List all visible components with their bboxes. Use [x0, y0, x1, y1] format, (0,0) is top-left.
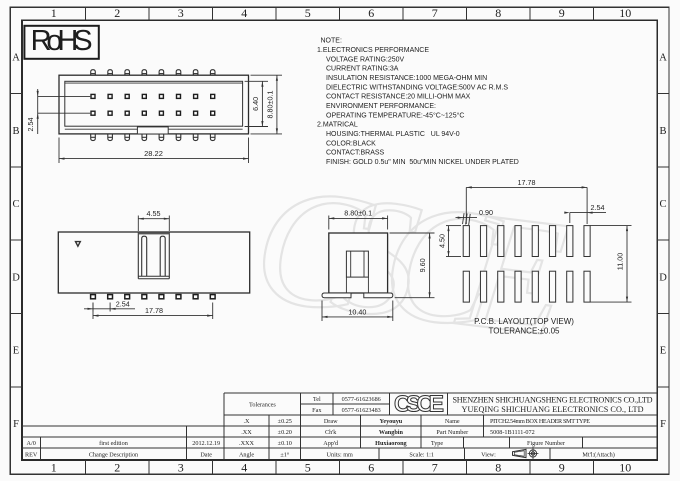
- svg-text:Date: Date: [200, 452, 212, 459]
- svg-text:CONTACT:BRASS: CONTACT:BRASS: [326, 150, 385, 157]
- svg-text:10: 10: [619, 461, 631, 475]
- svg-text:11.00: 11.00: [615, 253, 624, 270]
- svg-text:YUEQING SHICHUANG ELECTRONICS: YUEQING SHICHUANG ELECTRONICS CO., LTD: [462, 405, 644, 414]
- svg-text:ENVIRONMENT PERFORMANCE:: ENVIRONMENT PERFORMANCE:: [326, 103, 436, 110]
- svg-text:PITCH2.54mm BOX HEADER SMT TYP: PITCH2.54mm BOX HEADER SMT TYPE: [490, 418, 590, 425]
- svg-text:E: E: [13, 346, 19, 357]
- svg-text:C: C: [659, 199, 666, 210]
- svg-text:Angle: Angle: [239, 452, 254, 459]
- svg-text:Fax: Fax: [312, 407, 322, 414]
- svg-text:8.80±0.1: 8.80±0.1: [265, 91, 274, 119]
- svg-text:Yeyouyu: Yeyouyu: [380, 418, 403, 425]
- svg-text:2.54: 2.54: [591, 203, 605, 212]
- svg-text:6: 6: [368, 6, 374, 20]
- svg-text:9.60: 9.60: [418, 258, 427, 272]
- svg-text:OPERATING TEMPERATURE:-45°C~12: OPERATING TEMPERATURE:-45°C~125°C: [326, 111, 464, 119]
- svg-text:Change Description: Change Description: [89, 452, 138, 459]
- svg-text:5008-1B1111-072: 5008-1B1111-072: [490, 429, 535, 436]
- svg-text:Part Number: Part Number: [436, 429, 468, 436]
- svg-text:7: 7: [432, 6, 438, 20]
- svg-text:Scale: 1:1: Scale: 1:1: [409, 452, 434, 459]
- svg-text:REV: REV: [25, 452, 38, 459]
- svg-text:NOTE:: NOTE:: [321, 38, 342, 45]
- svg-text:D: D: [659, 272, 667, 283]
- svg-text:8: 8: [495, 461, 501, 475]
- svg-text:Mt'l:(Attach): Mt'l:(Attach): [582, 452, 614, 459]
- svg-text:D: D: [12, 272, 20, 283]
- svg-text:Huxiaorong: Huxiaorong: [375, 440, 407, 447]
- svg-text:CSCE: CSCE: [394, 390, 444, 416]
- svg-text:SHENZHEN SHICHUANGSHENG ELECTR: SHENZHEN SHICHUANGSHENG ELECTRONICS CO.,…: [453, 395, 653, 404]
- svg-text:Tolerances: Tolerances: [249, 401, 276, 408]
- svg-text:10.40: 10.40: [348, 308, 366, 317]
- svg-text:4.55: 4.55: [147, 209, 161, 218]
- svg-text:Figure Number: Figure Number: [527, 440, 565, 447]
- svg-text:COLOR:BLACK: COLOR:BLACK: [326, 140, 376, 147]
- svg-text:8.80±0.1: 8.80±0.1: [344, 209, 372, 218]
- svg-text:6.40: 6.40: [251, 97, 260, 111]
- svg-text:2012.12.19: 2012.12.19: [192, 440, 220, 447]
- svg-text:Name: Name: [445, 418, 460, 425]
- svg-text:.XX: .XX: [241, 429, 252, 436]
- svg-text:first edition: first edition: [99, 440, 128, 447]
- svg-text:3: 3: [178, 461, 184, 475]
- svg-text:View:: View:: [481, 452, 496, 459]
- svg-text:Type: Type: [431, 440, 444, 447]
- svg-text:±1°: ±1°: [280, 452, 289, 459]
- svg-text:Draw: Draw: [324, 418, 338, 425]
- svg-text:HOUSING:THERMAL PLASTIC UL 9: HOUSING:THERMAL PLASTIC UL 94V-0: [326, 131, 460, 138]
- svg-text:A/0: A/0: [27, 440, 36, 447]
- svg-text:F: F: [660, 419, 666, 430]
- svg-text:Units: mm: Units: mm: [327, 452, 353, 459]
- svg-text:5: 5: [305, 6, 311, 20]
- svg-text:±0.25: ±0.25: [278, 418, 292, 425]
- svg-text:A: A: [659, 53, 667, 64]
- svg-text:2.54: 2.54: [26, 118, 35, 132]
- svg-text:CURRENT RATING:3A: CURRENT RATING:3A: [326, 66, 399, 73]
- svg-text:RoHS: RoHS: [31, 25, 93, 57]
- svg-text:6: 6: [368, 461, 374, 475]
- svg-text:5: 5: [305, 461, 311, 475]
- svg-text:10: 10: [619, 6, 631, 20]
- svg-text:VOLTAGE RATING:250V: VOLTAGE RATING:250V: [326, 56, 405, 63]
- svg-text:0.90: 0.90: [479, 208, 493, 217]
- svg-text:FINISH: GOLD 0.5u" MIN 50u"MI: FINISH: GOLD 0.5u" MIN 50u"MIN NICKEL UN…: [326, 159, 519, 166]
- svg-text:B: B: [12, 126, 19, 137]
- svg-text:1: 1: [51, 6, 57, 20]
- svg-text:4: 4: [241, 461, 247, 475]
- svg-text:F: F: [13, 419, 19, 430]
- svg-text:.X: .X: [243, 418, 250, 425]
- svg-text:0577-61623686: 0577-61623686: [342, 396, 381, 403]
- svg-text:E: E: [660, 346, 666, 357]
- svg-text:P.C.B. LAYOUT(TOP VIEW): P.C.B. LAYOUT(TOP VIEW): [474, 317, 574, 326]
- svg-text:2: 2: [114, 6, 120, 20]
- svg-text:3: 3: [178, 6, 184, 20]
- svg-text:8: 8: [495, 6, 501, 20]
- svg-text:Tel: Tel: [313, 396, 321, 403]
- svg-text:DIELECTRIC WITHSTANDING VOLTAG: DIELECTRIC WITHSTANDING VOLTAGE:500V AC …: [326, 84, 508, 91]
- svg-text:CONTACT RESISTANCE:20 MILLI-OH: CONTACT RESISTANCE:20 MILLI-OHM MAX: [326, 94, 471, 101]
- svg-text:.XXX: .XXX: [239, 440, 254, 447]
- svg-text:9: 9: [559, 6, 565, 20]
- svg-text:A: A: [12, 53, 20, 64]
- svg-text:2.54: 2.54: [116, 299, 130, 308]
- svg-text:17.78: 17.78: [518, 178, 536, 187]
- svg-text:1: 1: [51, 461, 57, 475]
- svg-text:C: C: [12, 199, 19, 210]
- svg-text:B: B: [659, 126, 666, 137]
- svg-text:App'd: App'd: [323, 440, 339, 447]
- svg-text:INSULATION RESISTANCE:1000 MEG: INSULATION RESISTANCE:1000 MEGA-OHM MIN: [326, 75, 487, 82]
- svg-text:4: 4: [241, 6, 247, 20]
- svg-text:Wangbin: Wangbin: [379, 429, 404, 436]
- svg-text:Ch'k: Ch'k: [325, 429, 337, 436]
- svg-text:2.MATRICAL: 2.MATRICAL: [317, 122, 358, 129]
- svg-text:±0.10: ±0.10: [278, 440, 292, 447]
- svg-text:±0.20: ±0.20: [278, 429, 292, 436]
- svg-text:28.22: 28.22: [144, 149, 163, 158]
- svg-text:0577-61623483: 0577-61623483: [342, 407, 381, 414]
- svg-text:TOLERANCE:±0.05: TOLERANCE:±0.05: [489, 327, 560, 336]
- svg-text:9: 9: [559, 461, 565, 475]
- svg-text:2: 2: [114, 461, 120, 475]
- svg-text:7: 7: [432, 461, 438, 475]
- svg-text:4.50: 4.50: [437, 234, 446, 248]
- svg-text:1.ELECTRONICS PERFORMANCE: 1.ELECTRONICS PERFORMANCE: [317, 47, 429, 54]
- svg-text:17.78: 17.78: [145, 306, 163, 315]
